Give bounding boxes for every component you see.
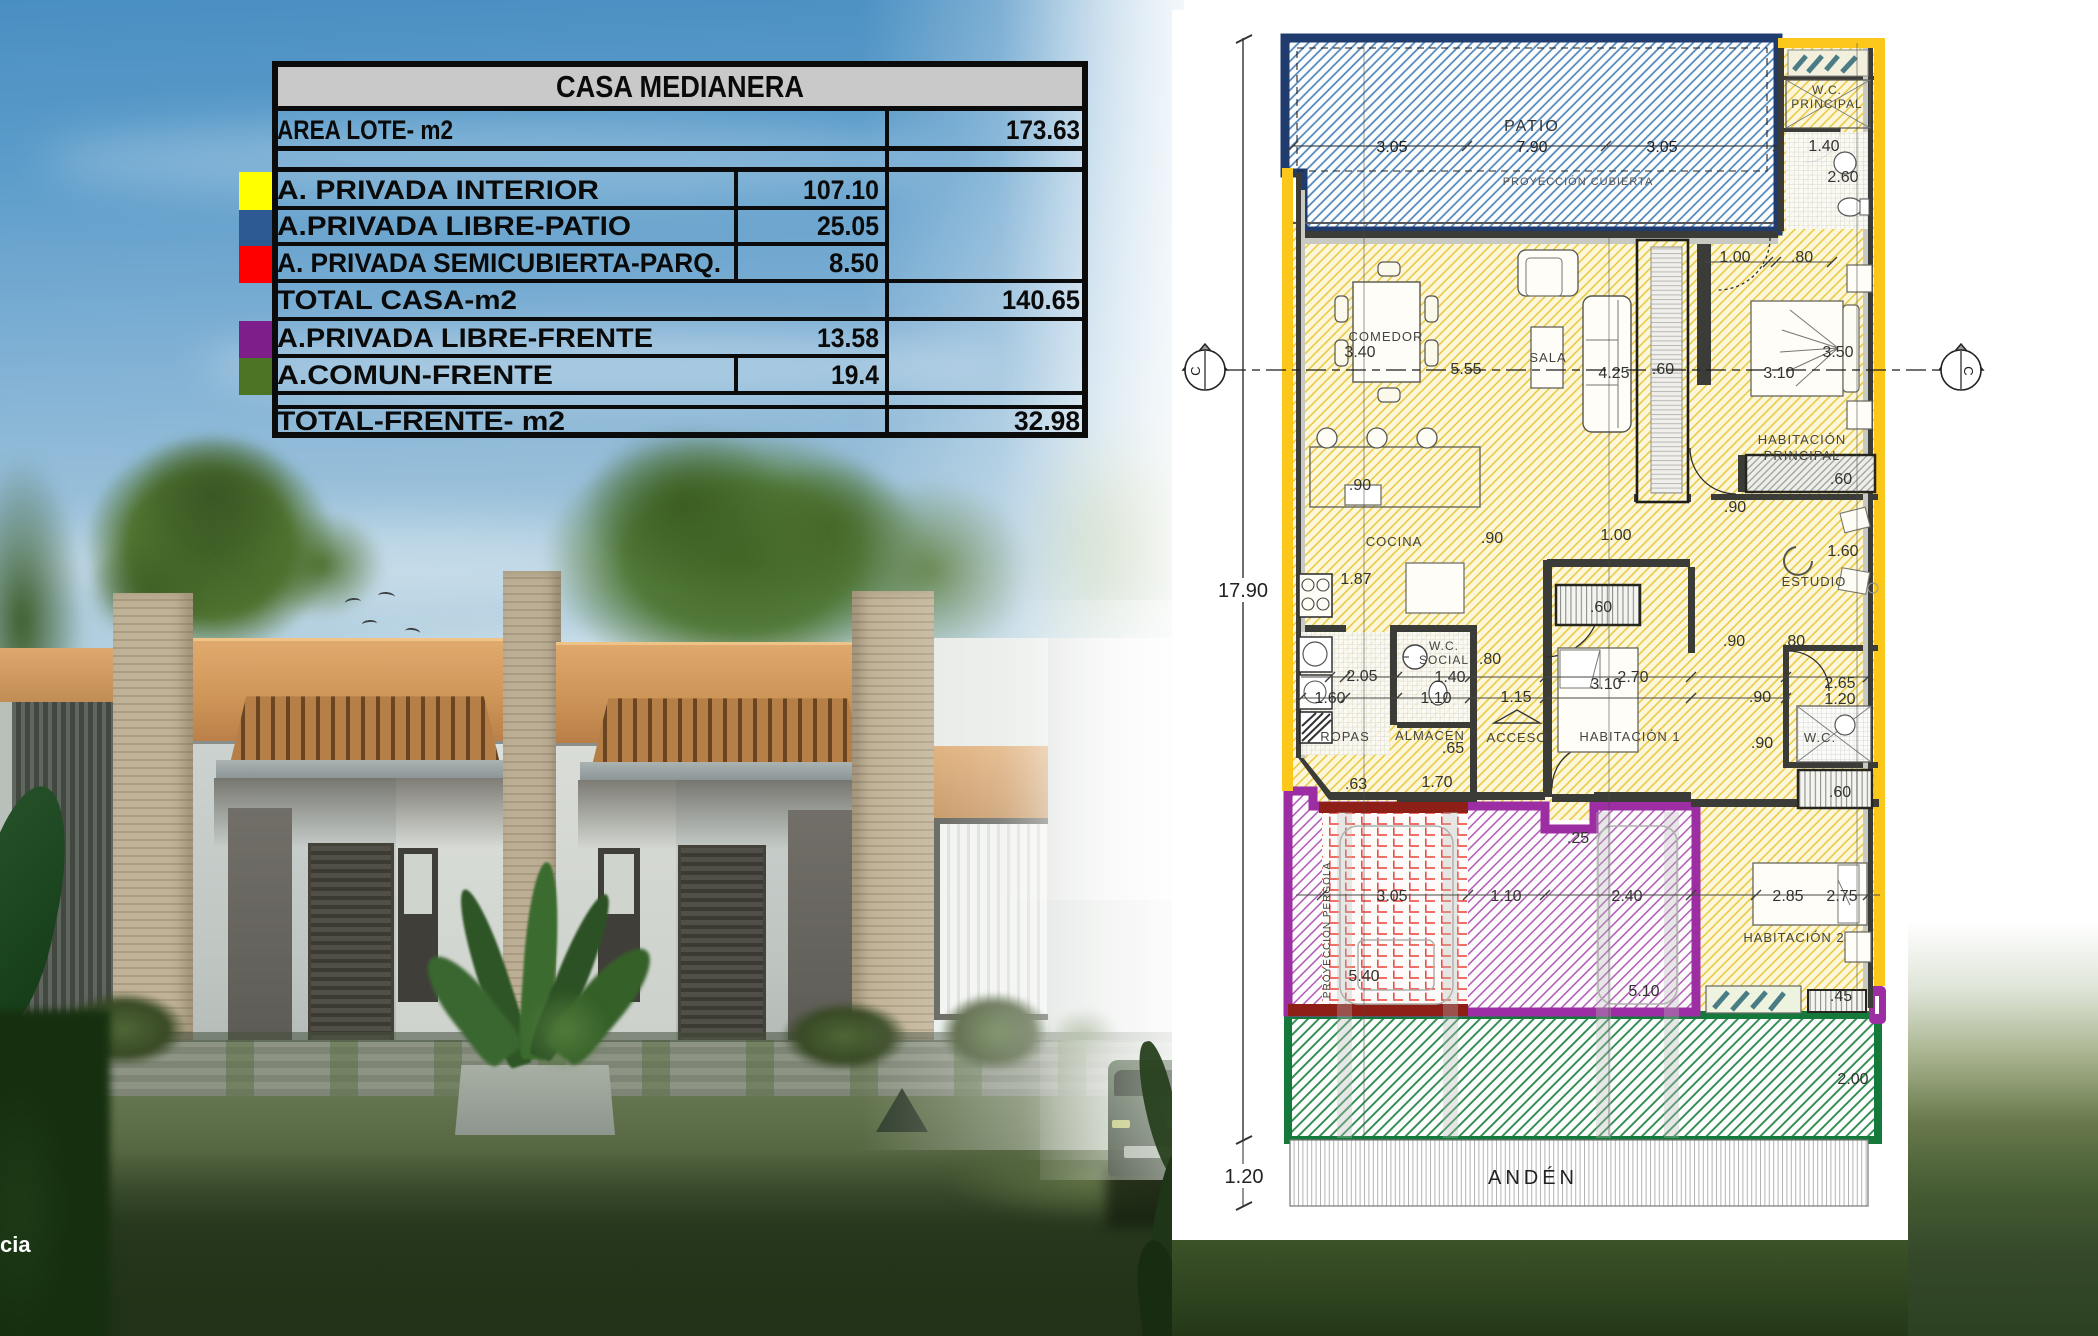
- svg-text:.90: .90: [1751, 735, 1773, 752]
- svg-text:ACCESO: ACCESO: [1487, 730, 1548, 745]
- svg-text:.90: .90: [1723, 633, 1745, 650]
- svg-text:2.60: 2.60: [1827, 169, 1858, 186]
- svg-text:A.PRIVADA LIBRE-PATIO: A.PRIVADA LIBRE-PATIO: [277, 211, 631, 241]
- svg-text:7.90: 7.90: [1516, 139, 1547, 156]
- svg-text:2.70: 2.70: [1617, 669, 1648, 686]
- svg-text:ANDÉN: ANDÉN: [1488, 1166, 1578, 1189]
- svg-text:2.05: 2.05: [1346, 668, 1377, 685]
- svg-text:5.40: 5.40: [1348, 968, 1379, 985]
- svg-text:.90: .90: [1349, 477, 1371, 494]
- svg-text:HABITACIÓN: HABITACIÓN: [1758, 432, 1847, 447]
- svg-text:1.10: 1.10: [1490, 888, 1521, 905]
- svg-text:.25: .25: [1567, 830, 1589, 847]
- svg-text:W.C.: W.C.: [1804, 730, 1836, 745]
- svg-text:A.PRIVADA LIBRE-FRENTE: A.PRIVADA LIBRE-FRENTE: [277, 323, 653, 353]
- svg-text:3.50: 3.50: [1822, 344, 1853, 361]
- svg-text:.63: .63: [1345, 776, 1367, 793]
- svg-text:ESTUDIO: ESTUDIO: [1782, 574, 1847, 589]
- svg-text:HABITACIÓN 2: HABITACIÓN 2: [1743, 930, 1844, 945]
- svg-text:HABITACIÓN 1: HABITACIÓN 1: [1579, 729, 1680, 744]
- svg-text:1.10: 1.10: [1420, 690, 1451, 707]
- svg-text:1.20: 1.20: [1824, 691, 1855, 708]
- svg-text:1.87: 1.87: [1340, 571, 1371, 588]
- svg-text:.90: .90: [1749, 689, 1771, 706]
- svg-text:COMEDOR: COMEDOR: [1349, 329, 1424, 344]
- svg-text:1.60: 1.60: [1314, 690, 1345, 707]
- svg-text:PROYECCIÓN CUBIERTA: PROYECCIÓN CUBIERTA: [1503, 175, 1654, 188]
- svg-text:SALA: SALA: [1529, 350, 1566, 365]
- svg-text:A.COMUN-FRENTE: A.COMUN-FRENTE: [277, 360, 553, 390]
- svg-text:173.63: 173.63: [1006, 115, 1080, 145]
- svg-text:1.15: 1.15: [1500, 689, 1531, 706]
- svg-text:8.50: 8.50: [829, 248, 879, 278]
- svg-text:ROPAS: ROPAS: [1320, 729, 1370, 744]
- svg-text:C: C: [1188, 366, 1203, 375]
- svg-text:4.25: 4.25: [1598, 365, 1629, 382]
- svg-text:A. PRIVADA INTERIOR: A. PRIVADA INTERIOR: [277, 175, 599, 205]
- svg-text:1.00: 1.00: [1719, 249, 1750, 266]
- svg-text:.90: .90: [1724, 499, 1746, 516]
- svg-text:32.98: 32.98: [1014, 406, 1080, 436]
- svg-text:.60: .60: [1829, 784, 1851, 801]
- svg-text:PRINCIPAL: PRINCIPAL: [1764, 448, 1841, 463]
- svg-text:.60: .60: [1830, 471, 1852, 488]
- svg-text:.65: .65: [1442, 740, 1464, 757]
- svg-text:3.10: 3.10: [1590, 676, 1621, 693]
- svg-text:PRINCIPAL: PRINCIPAL: [1791, 97, 1862, 111]
- svg-text:1.40: 1.40: [1808, 138, 1839, 155]
- svg-text:1.40: 1.40: [1434, 669, 1465, 686]
- svg-text:5.10: 5.10: [1628, 983, 1659, 1000]
- svg-text:3.40: 3.40: [1344, 344, 1375, 361]
- svg-text:13.58: 13.58: [817, 323, 879, 353]
- svg-text:1.20: 1.20: [1225, 1166, 1264, 1188]
- svg-text:2.75: 2.75: [1826, 888, 1857, 905]
- svg-text:17.90: 17.90: [1218, 580, 1268, 602]
- svg-text:PATIO: PATIO: [1504, 118, 1560, 135]
- svg-text:.80: .80: [1479, 651, 1501, 668]
- svg-text:2.85: 2.85: [1772, 888, 1803, 905]
- svg-text:140.65: 140.65: [1002, 285, 1080, 315]
- svg-text:.60: .60: [1590, 599, 1612, 616]
- svg-text:W.C.: W.C.: [1812, 83, 1842, 97]
- svg-text:25.05: 25.05: [817, 211, 879, 241]
- svg-text:W.C.: W.C.: [1429, 639, 1459, 653]
- svg-text:A. PRIVADA SEMICUBIERTA-PARQ.: A. PRIVADA SEMICUBIERTA-PARQ.: [277, 248, 721, 278]
- svg-text:1.60: 1.60: [1827, 543, 1858, 560]
- svg-text:C: C: [1961, 366, 1976, 375]
- svg-text:3.05: 3.05: [1376, 888, 1407, 905]
- svg-text:COCINA: COCINA: [1366, 534, 1423, 549]
- svg-text:2.40: 2.40: [1611, 888, 1642, 905]
- svg-text:.90: .90: [1481, 530, 1503, 547]
- svg-text:3.05: 3.05: [1376, 139, 1407, 156]
- svg-text:SOCIAL: SOCIAL: [1419, 653, 1469, 667]
- svg-text:1.70: 1.70: [1421, 774, 1452, 791]
- svg-text:.80: .80: [1783, 633, 1805, 650]
- svg-text:3.05: 3.05: [1646, 139, 1677, 156]
- svg-text:CASA MEDIANERA: CASA MEDIANERA: [556, 69, 804, 104]
- svg-text:TOTAL CASA-m2: TOTAL CASA-m2: [277, 285, 517, 315]
- svg-text:PROYECCION PERGOLA: PROYECCION PERGOLA: [1322, 862, 1333, 998]
- svg-text:.80: .80: [1791, 249, 1813, 266]
- svg-text:1.00: 1.00: [1600, 527, 1631, 544]
- svg-text:107.10: 107.10: [803, 175, 879, 205]
- svg-text:3.10: 3.10: [1763, 365, 1794, 382]
- svg-text:2.65: 2.65: [1824, 675, 1855, 692]
- svg-text:TOTAL-FRENTE- m2: TOTAL-FRENTE- m2: [277, 406, 565, 436]
- svg-text:19.4: 19.4: [831, 360, 879, 390]
- svg-text:AREA LOTE- m2: AREA LOTE- m2: [277, 115, 453, 145]
- svg-text:2.00: 2.00: [1837, 1071, 1868, 1088]
- svg-text:.45: .45: [1830, 988, 1852, 1005]
